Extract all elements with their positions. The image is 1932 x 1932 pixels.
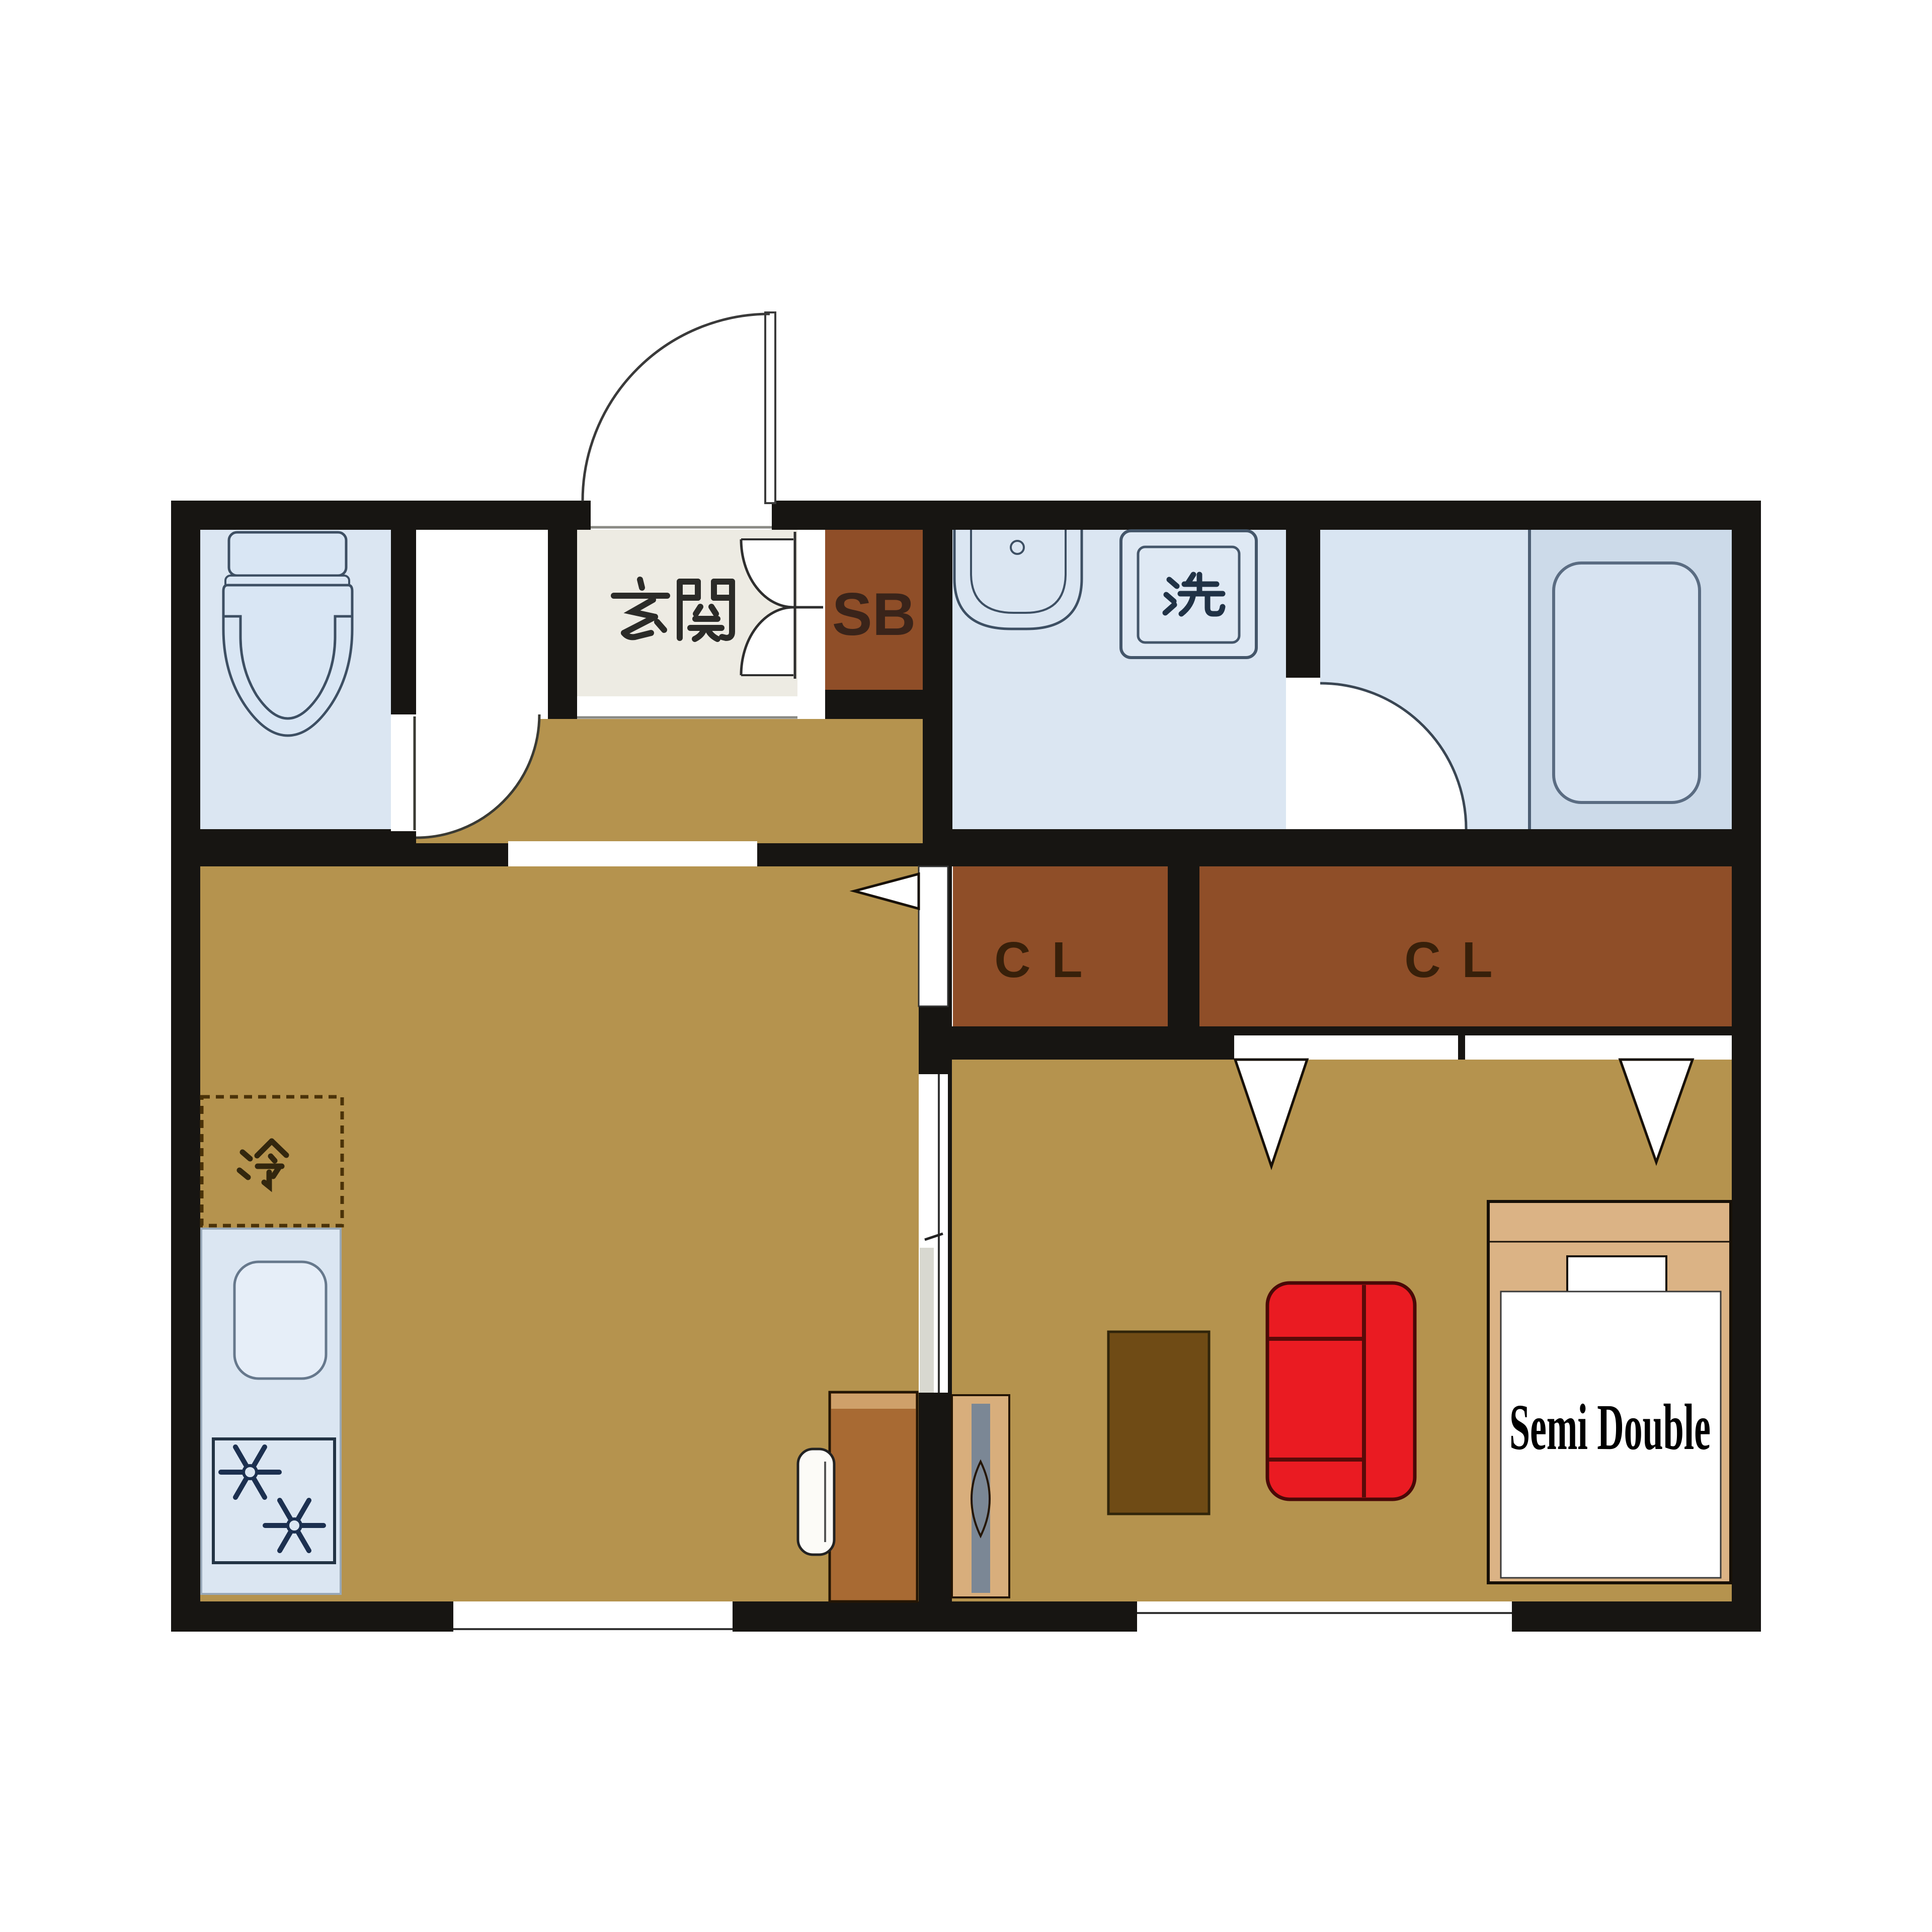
svg-text:Semi Double: Semi Double [1509,1391,1711,1464]
svg-text:CL: CL [1404,932,1513,988]
svg-text:CL: CL [994,932,1103,988]
svg-text:SB: SB [832,581,916,648]
